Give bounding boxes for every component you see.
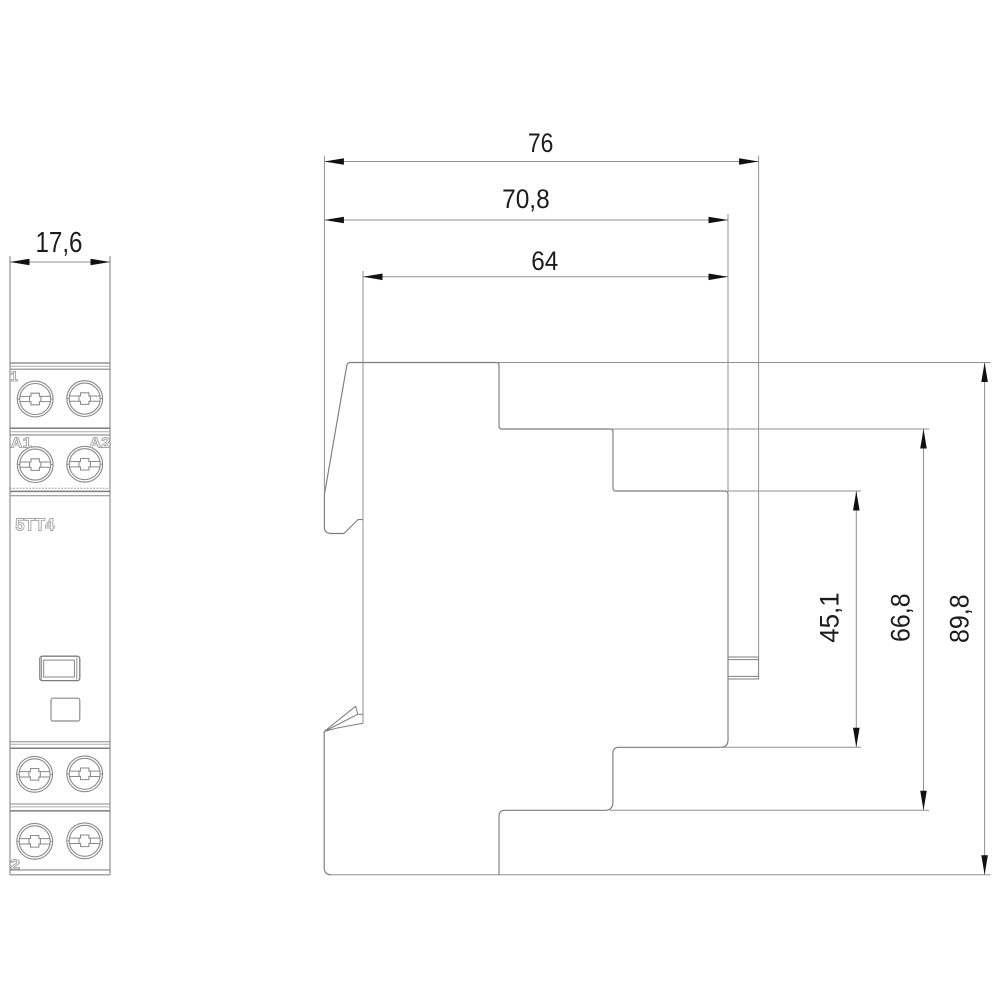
svg-text:45,1: 45,1 xyxy=(814,592,844,643)
svg-text:1: 1 xyxy=(11,369,19,384)
svg-text:17,6: 17,6 xyxy=(36,227,83,259)
svg-text:66,8: 66,8 xyxy=(885,593,915,642)
svg-text:A1: A1 xyxy=(11,434,32,451)
svg-text:70,8: 70,8 xyxy=(502,184,550,214)
svg-text:2: 2 xyxy=(10,857,20,872)
svg-text:64: 64 xyxy=(531,246,558,276)
svg-text:76: 76 xyxy=(528,128,554,158)
svg-text:A2: A2 xyxy=(89,434,110,451)
svg-text:5TT4: 5TT4 xyxy=(15,515,55,535)
svg-text:89,8: 89,8 xyxy=(944,594,974,643)
